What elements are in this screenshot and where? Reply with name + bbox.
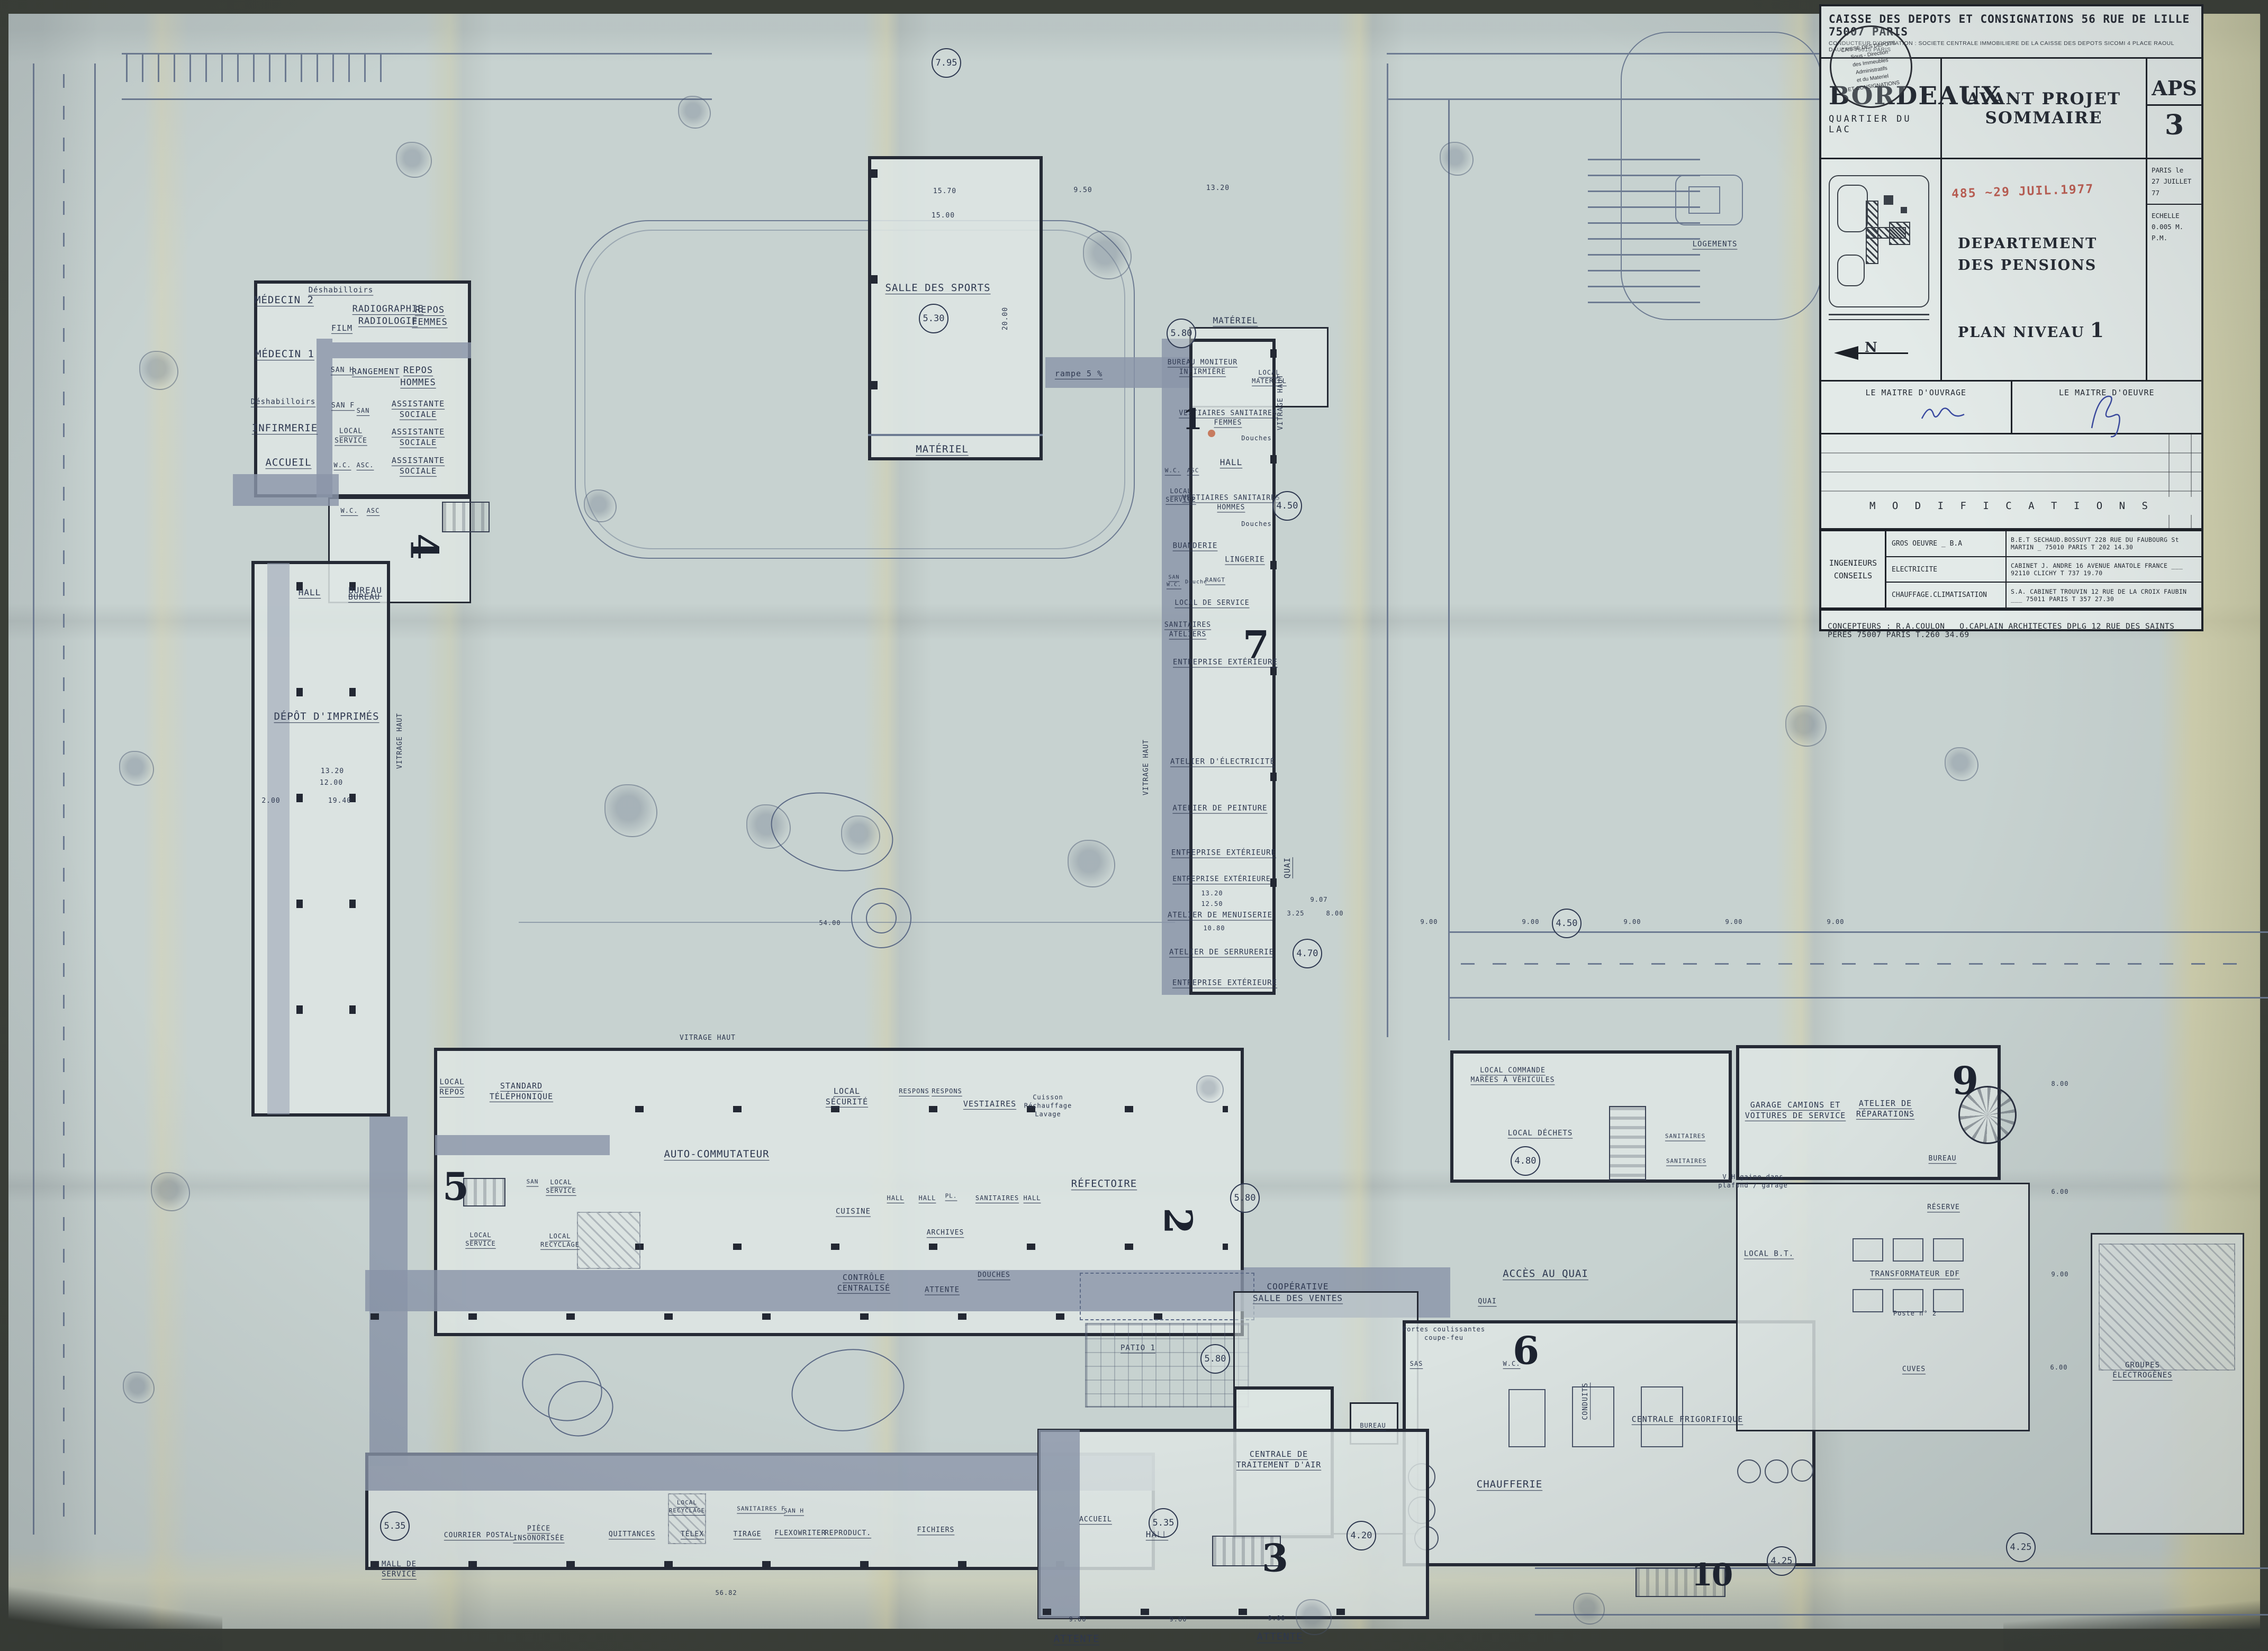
tree-icon (604, 784, 657, 837)
tree-icon (678, 96, 711, 129)
doc-number: 3 (2147, 106, 2201, 144)
scale-cell: ECHELLE 0.005 M. P.M. (2147, 205, 2201, 249)
tree-icon (1296, 1599, 1332, 1635)
modifications-area: M O D I F I C A T I O N S (1821, 434, 2201, 530)
tree-icon (139, 351, 178, 390)
engineer-firm: B.E.T SECHAUD.BOSSUYT 228 RUE DU FAUBOUR… (2007, 536, 2201, 551)
plan-level-title: PLAN NIVEAU1 (1958, 318, 2105, 342)
engineers-title: INGENIEURS CONSEILS (1821, 531, 1886, 607)
tree-icon (1068, 840, 1115, 887)
drawing-title: DEPARTEMENT DES PENSIONS (1958, 233, 2097, 276)
tree-icon (1573, 1593, 1605, 1625)
engineer-firm: CABINET J. ANDRE 16 AVENUE ANATOLE FRANC… (2007, 562, 2201, 577)
engineer-row: GROS OEUVRE _ B.A B.E.T SECHAUD.BOSSUYT … (1886, 531, 2201, 557)
doc-code: APS (2147, 72, 2201, 106)
concepteurs-line: CONCEPTEURS : R.A.COULON _ O.CAPLAIN ARC… (1821, 609, 2201, 650)
tree-icon (746, 804, 791, 849)
tree-icon (396, 142, 432, 178)
registration-stamp-red: 485 ~29 JUIL.1977 (1951, 182, 2094, 201)
engineer-firm: S.A. CABINET TROUVIN 12 RUE DE LA CROIX … (2007, 588, 2201, 603)
tree-icon (584, 489, 617, 522)
date-cell: PARIS le 27 JUILLET 77 (2147, 159, 2201, 205)
engineer-discipline: ELECTRICITE (1886, 557, 2007, 582)
tree-icon (841, 815, 880, 855)
north-letter: N (1865, 340, 1877, 356)
tree-icon (1785, 705, 1827, 747)
project-phase: AVANT PROJET SOMMAIRE (1942, 89, 2146, 128)
modifications-title: M O D I F I C A T I O N S (1821, 497, 2201, 515)
project-district: QUARTIER DU LAC (1829, 114, 1940, 135)
engineer-discipline: GROS OEUVRE _ B.A (1886, 531, 2007, 556)
engineer-row: ELECTRICITE CABINET J. ANDRE 16 AVENUE A… (1886, 557, 2201, 583)
tree-icon (1083, 231, 1132, 279)
tree-icon (1440, 142, 1474, 176)
engineers-table: INGENIEURS CONSEILS GROS OEUVRE _ B.A B.… (1821, 530, 2201, 609)
tree-icon (151, 1172, 190, 1211)
tree-icon (119, 751, 154, 786)
tree-icon (1196, 1075, 1224, 1103)
maitre-ouvrage-cell: LE MAITRE D'OUVRAGE (1821, 382, 2012, 433)
engineer-row: CHAUFFAGE.CLIMATISATION S.A. CABINET TRO… (1886, 583, 2201, 607)
title-block: CAISSE DES DEPOTS ET CONSIGNATIONS 56 RU… (1819, 4, 2203, 631)
maitre-oeuvre-cell: LE MAITRE D'OEUVRE (2012, 382, 2202, 433)
engineer-discipline: CHAUFFAGE.CLIMATISATION (1886, 583, 2007, 607)
key-plan: N (1821, 159, 1942, 380)
tree-icon (123, 1372, 155, 1403)
photographed-blueprint: MÉDECIN 2DéshabilloirsRADIOGRAPHIE RADIO… (0, 0, 2268, 1651)
tree-icon (1945, 747, 1978, 781)
